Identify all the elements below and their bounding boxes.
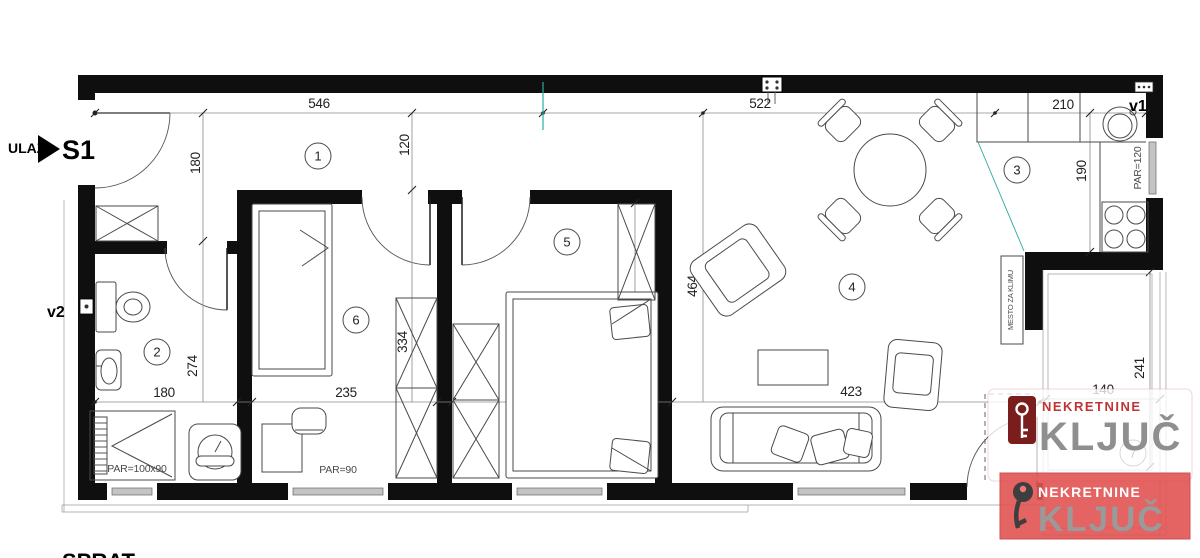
bathroom-door [165,248,227,310]
bath-window [112,488,152,495]
room6-window [293,488,383,495]
ac-spot-label: MESTO ZA KLIMU [1006,270,1015,330]
dim-210: 210 [1052,97,1074,112]
banner-brand-name: KLJUČ [1038,499,1165,539]
vent-v2-label: v2 [47,304,65,321]
dining-table-icon [854,134,926,206]
watermark-upper: NEKRETNINE KLJUČ [988,389,1192,481]
entrance-door [93,111,171,189]
dim-235: 235 [335,385,357,400]
svg-text:6: 6 [352,313,359,328]
banner-brand-line: NEKRETNINE [1038,484,1141,500]
dim-274: 274 [185,354,200,376]
living-furniture [686,98,963,471]
dim-546: 546 [308,96,330,111]
svg-text:5: 5 [563,235,570,250]
toilet-icon [96,282,150,332]
room5-wardrobe-top-icon [618,204,655,300]
room5-window [517,488,602,495]
dim-334-room6: 334 [395,330,410,352]
room5-wardrobe-left-icon [453,324,499,478]
dim-522: 522 [749,96,771,111]
dim-180-hall: 180 [188,152,203,174]
entrance-arrow-icon [38,135,60,163]
sink-icon [96,350,121,390]
kitchen-fixtures [977,93,1148,252]
dining-chair-icon [915,194,963,242]
par-room6: PAR=90 [319,464,357,476]
kitchen-window [1149,142,1156,194]
room-number-1: 1 [305,143,331,169]
armchair-icon [883,339,943,411]
sofa-icon [711,407,881,471]
dim-241: 241 [1132,357,1147,379]
dining-chair-icon [817,98,865,146]
room6-wardrobe-icon [396,298,437,478]
ac-spot: MESTO ZA KLIMU [1001,256,1023,344]
floor-caption: SPRAT [62,549,135,558]
room-number-4: 4 [839,274,865,300]
entrance-label-group: ULAZ S1 [8,135,95,165]
dining-chair-icon [915,98,963,146]
room5-door [462,197,530,265]
desk-chair-icon [292,408,326,434]
dim-180-bath: 180 [153,385,175,400]
watermark-brand-name: KLJUČ [1039,413,1182,459]
watermark-banner: NEKRETNINE KLJUČ [1000,473,1190,539]
kitchen-counter [977,93,1146,252]
living-window [798,488,905,495]
room-number-5: 5 [554,229,580,255]
room6-door [362,197,430,265]
electrical-panel-icon [80,299,93,314]
dining-chair-icon [817,194,865,242]
room-number-6: 6 [343,307,369,333]
armchair-icon [686,220,789,320]
tv-stand-icon [758,350,828,385]
vent-v1-label: v1 [1129,98,1147,115]
svg-text:3: 3 [1013,163,1020,178]
single-bed-icon [252,204,332,376]
dim-120: 120 [397,134,412,156]
room-number-2: 2 [144,339,170,365]
kitchen-diagonal [978,142,1024,251]
par-kitchen: PAR=120 [1132,146,1144,189]
room5-furniture [453,204,658,478]
vent-symbol-corner [1135,82,1153,92]
bathroom-fixtures [90,282,241,480]
dim-423: 423 [840,384,862,399]
washing-machine-icon [189,424,241,480]
dim-190: 190 [1074,160,1089,182]
hall-wardrobe-icon [96,206,158,241]
unit-code: S1 [62,135,95,165]
stove-icon [1102,202,1148,252]
svg-text:2: 2 [153,345,160,360]
double-bed-icon [506,292,658,478]
svg-text:4: 4 [848,280,855,295]
watermark-brand-line: NEKRETNINE [1042,399,1142,414]
svg-text:1: 1 [314,149,321,164]
floor-plan: 546 522 210 180 120 190 464 334 334 274 … [0,0,1200,558]
floor-plan-canvas: 546 522 210 180 120 190 464 334 334 274 … [0,0,1200,558]
par-bath: PAR=100x90 [107,463,167,475]
room-number-3: 3 [1004,157,1030,183]
